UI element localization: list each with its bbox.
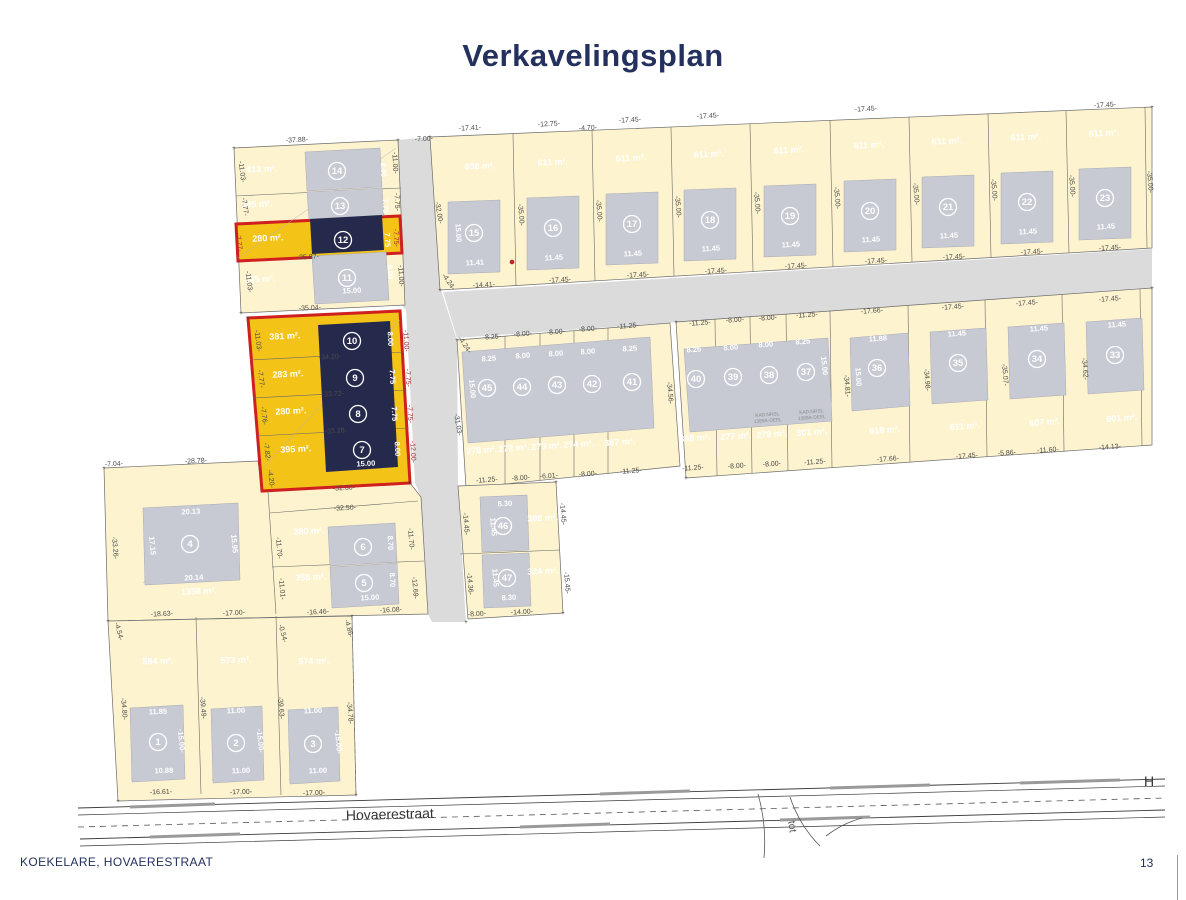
area-label: 358 m².	[295, 571, 327, 583]
survey-marker: +	[408, 481, 412, 487]
dimension-label: -8.00-	[726, 316, 745, 324]
footer-location: KOEKELARE, HOVAERESTRAAT	[20, 855, 213, 869]
plot-number-34: 34	[1032, 354, 1043, 365]
plot-number-42: 42	[587, 379, 598, 390]
dimension-label: -17.45-	[1099, 244, 1122, 252]
dimension-label: -17.45-	[1021, 248, 1044, 256]
plot-number-37: 37	[801, 367, 812, 378]
footer-rule	[1177, 855, 1178, 900]
plot-number-8: 8	[355, 409, 360, 420]
building-dim-label: 15.00	[342, 286, 361, 296]
building-dim-label: 8.25	[686, 345, 701, 355]
building-dim-label: 7.75	[381, 198, 391, 213]
dimension-label: -14.13-	[1099, 443, 1122, 452]
dimension-label: -17.45-	[705, 267, 728, 275]
plot-number-38: 38	[764, 370, 775, 381]
dimension-label: -28.78-	[185, 457, 208, 465]
dimension-label: -11.00-	[396, 265, 404, 288]
plot-number-3: 3	[310, 739, 315, 750]
building-dim-label: 8.00	[548, 349, 563, 359]
plot-number-22: 22	[1022, 197, 1033, 208]
dimension-label: -17.45-	[1094, 101, 1117, 109]
plot-number-33: 33	[1110, 350, 1121, 361]
survey-marker: +	[554, 480, 558, 486]
dimension-label: -8.00-	[579, 470, 598, 478]
dimension-label: -7.75-	[406, 405, 414, 424]
dimension-label: -32.60-	[333, 484, 356, 492]
building-dim-label: 7.75	[383, 232, 393, 247]
building-dim-label: 8.00	[515, 351, 530, 361]
building-dim-label: 20.14	[184, 572, 204, 582]
plot-number-45: 45	[482, 383, 493, 394]
survey-marker: +	[1150, 286, 1154, 292]
plot-number-15: 15	[469, 228, 480, 239]
survey-marker: +	[106, 619, 110, 625]
street-line	[150, 834, 240, 837]
dimension-label: -4.70-	[579, 124, 598, 132]
dimension-label: -6.01-	[540, 472, 559, 480]
area-label: 324 m².	[527, 565, 559, 577]
building-dim-label: 8.00	[386, 264, 396, 279]
survey-marker: +	[232, 146, 236, 152]
dimension-label: -33.72-	[322, 390, 345, 398]
dimension-label: -37.88-	[286, 136, 309, 144]
building-dim-label: 11.00	[309, 766, 328, 776]
building-dim-label: 8.00	[386, 331, 396, 346]
area-label: 574 m².	[298, 655, 329, 666]
area-label: 611 m².	[931, 135, 962, 147]
building-dim-label: 8.00	[393, 441, 403, 456]
dimension-label: -17.00-	[223, 609, 246, 617]
plot-number-6: 6	[360, 542, 365, 553]
area-label: 611 m².	[693, 148, 724, 160]
dimension-label: -7.00-	[415, 135, 434, 143]
dimension-label: -11.00-	[390, 152, 398, 175]
area-label: 1358 m².	[181, 585, 218, 597]
building-dim-label: 11.45	[1096, 222, 1115, 232]
dimension-label: -17.45-	[943, 253, 966, 261]
dimension-label: -16.08-	[380, 606, 403, 614]
building-dim-label: 8.30	[497, 499, 512, 509]
building-dim-label: 8.00	[379, 162, 389, 177]
plot-number-5: 5	[361, 578, 367, 589]
dimension-label: -17.00-	[303, 790, 326, 798]
dimension-label: -17.45-	[785, 262, 808, 270]
area-label: 280 m².	[252, 232, 284, 244]
street-line	[78, 798, 1165, 827]
survey-marker: +	[116, 799, 120, 805]
dimension-label: -5.86-	[998, 449, 1017, 457]
survey-marker: +	[1150, 105, 1154, 111]
plot-number-20: 20	[865, 206, 876, 217]
plot-number-18: 18	[705, 215, 716, 226]
building-dim-label: 15.00	[454, 223, 464, 242]
dimension-label: -17.45-	[549, 276, 572, 284]
area-label: 611 m².	[949, 420, 980, 432]
dimension-label: -17.45-	[855, 105, 878, 113]
page-number: 13	[1140, 856, 1153, 870]
building-dim-label: 20.13	[181, 507, 200, 517]
dimension-label: -16.61-	[150, 789, 173, 797]
street-label: tot	[785, 820, 798, 833]
plot-number-40: 40	[691, 374, 702, 385]
building-dim-label: 8.00	[758, 340, 773, 350]
plot-number-36: 36	[872, 363, 883, 374]
building-dim-label: 8.30	[501, 593, 516, 603]
dimension-label: -35.87-	[297, 253, 320, 261]
survey-marker: +	[464, 620, 468, 626]
dimension-label: -15.45-	[562, 572, 571, 595]
building-dim-label: 8.00	[580, 347, 595, 357]
dimension-label: -17.45-	[865, 257, 888, 265]
plot-number-9: 9	[352, 373, 357, 384]
plot-number-43: 43	[552, 380, 563, 391]
dimension-label: -11.60-	[1037, 446, 1060, 455]
area-label: 413 m².	[246, 163, 278, 175]
dimension-label: -12.75-	[538, 120, 561, 128]
dimension-label: -14.41-	[473, 281, 496, 289]
plot-number-12: 12	[338, 235, 349, 246]
building-dim-label: 11.45	[939, 231, 958, 241]
building-dim-label: 11.00	[227, 706, 246, 716]
building-dim-label: 11.45	[490, 568, 501, 587]
building-dim-label: 11.45	[861, 235, 880, 245]
plot-number-10: 10	[347, 336, 358, 347]
plot-number-41: 41	[627, 377, 638, 388]
plot-number-1: 1	[155, 737, 161, 748]
street-line	[830, 785, 930, 788]
building-dim-label: 8.25	[481, 354, 496, 364]
building-dim-label: 8.70	[388, 572, 398, 587]
building-dim-label: 11.00	[232, 766, 251, 776]
area-label: 395 m².	[280, 443, 312, 455]
plot-number-44: 44	[517, 382, 528, 393]
area-label: 611 m².	[615, 152, 646, 164]
building-dim-label: 11.45	[701, 244, 720, 254]
area-label: 608 m².	[464, 160, 496, 172]
building-14	[305, 148, 382, 191]
survey-marker: +	[354, 793, 358, 799]
dimension-label: -7.75-	[393, 193, 401, 212]
building-dim-label: 15.00	[356, 459, 375, 469]
street-label: Hovaerestraat	[346, 805, 434, 823]
building-dim-label: 7.75	[390, 406, 400, 421]
dimension-label: -14.00-	[511, 608, 534, 616]
building-dim-label: 11.00	[304, 706, 323, 716]
dimension-label: -8.00-	[512, 474, 531, 482]
dimension-label: -8.00-	[468, 610, 487, 618]
survey-marker: +	[246, 316, 250, 322]
brochure-page: Verkavelingsplan ++++++++++++++++++++141…	[0, 0, 1186, 900]
area-label: 611 m².	[1088, 127, 1119, 139]
street-line	[1020, 780, 1120, 783]
survey-marker: +	[561, 611, 565, 617]
building-dim-label: 15.00	[854, 367, 864, 386]
dimension-label: -16.46-	[307, 608, 330, 616]
area-label: 611 m².	[537, 156, 568, 168]
building-dim-label: 15.00	[467, 379, 478, 398]
plot-number-2: 2	[233, 738, 238, 749]
dimension-label: -35.04-	[299, 304, 322, 312]
dimension-label: -17.00-	[230, 789, 253, 797]
area-label: 280 m².	[275, 405, 307, 417]
building-dim-label: 15.00	[819, 356, 830, 375]
subdivision-plan-drawing: ++++++++++++++++++++14131211109871516171…	[0, 0, 1186, 900]
area-label: 611 m².	[853, 139, 884, 151]
dimension-label: -17.41-	[459, 124, 482, 132]
survey-marker: +	[438, 288, 442, 294]
building-dim-label: 11.45	[947, 328, 966, 338]
street-line	[600, 791, 690, 794]
plot-number-39: 39	[728, 372, 739, 383]
dimension-label: -17.45-	[619, 116, 642, 124]
dimension-label: -8.00-	[579, 325, 598, 333]
plot-number-16: 16	[548, 223, 559, 234]
building-dim-label: 11.85	[149, 707, 168, 717]
building-dim-label: 8.25	[622, 344, 637, 354]
area-label: 380 m².	[293, 525, 325, 537]
dimension-label: -17.45-	[627, 271, 650, 279]
building-dim-label: 11.41	[465, 258, 484, 268]
building-dim-label: 11.45	[623, 249, 642, 259]
plot-number-4: 4	[187, 539, 193, 550]
red-marker-dot	[510, 260, 515, 265]
area-label: 308 m².	[527, 512, 559, 524]
dimension-label: -12.00-	[408, 441, 416, 464]
street-line	[80, 810, 1165, 839]
plot-number-14: 14	[332, 166, 343, 177]
area-label: 381 m².	[269, 330, 301, 342]
area-label: 611 m².	[1010, 131, 1041, 143]
building-dim-label: 17.15	[147, 536, 158, 555]
street-line	[130, 804, 215, 807]
survey-marker: +	[396, 138, 400, 144]
survey-marker: +	[350, 614, 354, 620]
dimension-label: -34.20-	[319, 353, 342, 361]
building-dim-label: 10.88	[154, 766, 173, 776]
street-label: H	[1144, 773, 1154, 789]
dimension-label: -17.45-	[697, 112, 720, 120]
building-dim-label: 11.45	[1107, 319, 1126, 329]
building-dim-label: 8.00	[723, 343, 738, 353]
building-dim-label: 11.88	[868, 333, 887, 343]
survey-marker: +	[674, 320, 678, 326]
dimension-label: -8.00-	[759, 314, 778, 322]
dimension-label: -18.63-	[151, 610, 174, 618]
dimension-label: -8.25-	[483, 333, 502, 341]
dimension-label: -14.45-	[558, 503, 567, 526]
area-label: 573 m².	[220, 654, 251, 665]
plot-number-21: 21	[943, 202, 954, 213]
dimension-label: -17.45-	[956, 452, 979, 461]
area-label: 611 m².	[773, 144, 804, 156]
dimension-label: -7.77-	[234, 233, 243, 253]
dimension-label: -7.04-	[105, 460, 124, 468]
plot-number-23: 23	[1100, 193, 1111, 204]
plot-number-13: 13	[335, 201, 346, 212]
dimension-label: -8.00-	[514, 330, 533, 338]
street-line	[520, 824, 610, 827]
building-dim-label: 15.00	[360, 593, 379, 603]
plot-number-35: 35	[953, 358, 964, 369]
street-line	[758, 794, 765, 858]
plot-number-19: 19	[785, 211, 796, 222]
building-dim-label: 8.25	[795, 337, 810, 347]
plot-number-17: 17	[627, 219, 638, 230]
street-line	[80, 817, 1165, 846]
dimension-label: -11.25-	[620, 467, 643, 476]
dimension-label: -8.00-	[728, 462, 747, 470]
building-dim-label: 11.45	[781, 240, 800, 250]
dimension-label: -11.00-	[401, 330, 409, 353]
dimension-label: -33.28-	[325, 427, 348, 435]
building-dim-label: 7.75	[388, 369, 398, 384]
building-dim-label: 11.45	[544, 253, 563, 263]
building-dim-label: 11.45	[1018, 227, 1037, 237]
plot-number-11: 11	[342, 273, 353, 284]
area-label: 283 m².	[272, 368, 304, 380]
area-label: 584 m².	[142, 655, 173, 666]
street-line	[826, 818, 862, 836]
dimension-label: -7.75-	[404, 369, 412, 388]
survey-marker: +	[239, 311, 243, 317]
building-dim-label: 15.95	[229, 534, 240, 553]
building-dim-label: 11.45	[488, 517, 499, 536]
survey-marker: +	[684, 476, 688, 482]
plot-number-47: 47	[502, 573, 513, 584]
dimension-label: -7.75-	[392, 229, 400, 248]
dimension-label: -8.00-	[763, 460, 782, 468]
dimension-label: -8.00-	[547, 328, 566, 336]
dimension-label: -32.50-	[334, 504, 357, 512]
building-dim-label: 8.70	[386, 535, 396, 550]
plot-number-7: 7	[359, 445, 364, 456]
building-13	[307, 188, 384, 219]
building-dim-label: 11.45	[1029, 323, 1048, 333]
